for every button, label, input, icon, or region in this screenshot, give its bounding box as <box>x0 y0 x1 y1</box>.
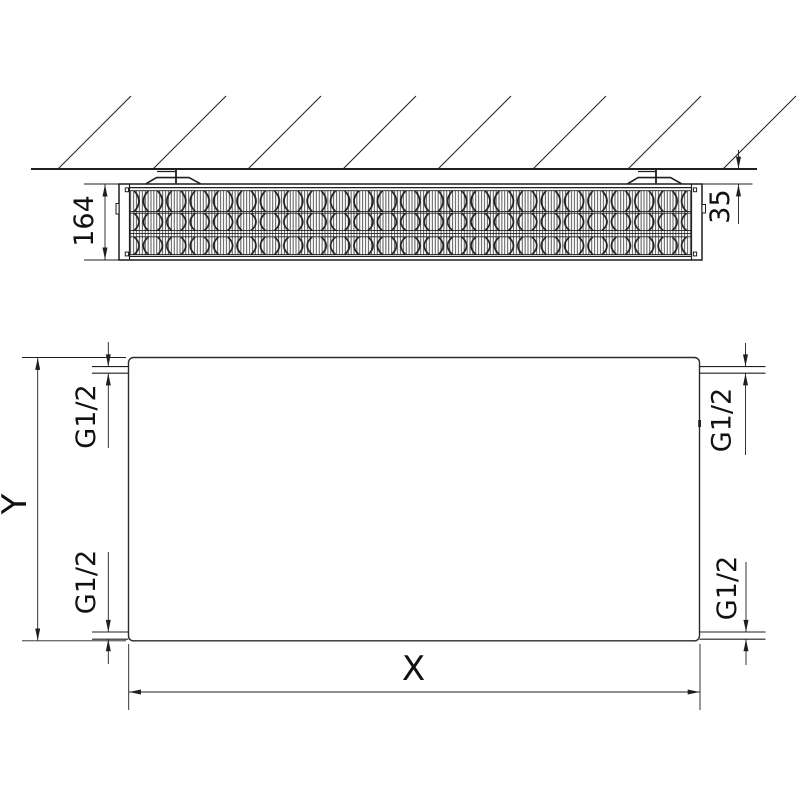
connection-label-bottom-left: G1/2 <box>71 550 102 614</box>
depth-dimension-label: 164 <box>69 195 100 247</box>
width-dimension-label: X <box>402 649 425 689</box>
connection-label-top-right: G1/2 <box>707 388 738 452</box>
radiator-fins <box>130 191 692 255</box>
radiator-technical-drawing: 164 35 G1/2 <box>0 0 800 800</box>
drawing-canvas: 164 35 G1/2 <box>0 0 800 800</box>
connection-label-top-left: G1/2 <box>71 384 102 448</box>
dimension-connection-bottom-right <box>744 562 749 665</box>
radiator-front-view <box>92 358 766 641</box>
side-tab-left <box>116 204 119 215</box>
mounting-bracket-left <box>146 170 201 184</box>
height-dimension-label: Y <box>0 493 35 515</box>
radiator-top-view <box>116 184 706 260</box>
wall-gap-dimension-label: 35 <box>705 189 736 223</box>
dimension-connection-top-right <box>743 343 748 455</box>
connection-label-bottom-right: G1/2 <box>712 556 743 620</box>
wall-hatching <box>58 96 796 169</box>
mounting-bracket-right <box>628 170 682 184</box>
dimension-connection-bottom-left <box>106 552 111 664</box>
